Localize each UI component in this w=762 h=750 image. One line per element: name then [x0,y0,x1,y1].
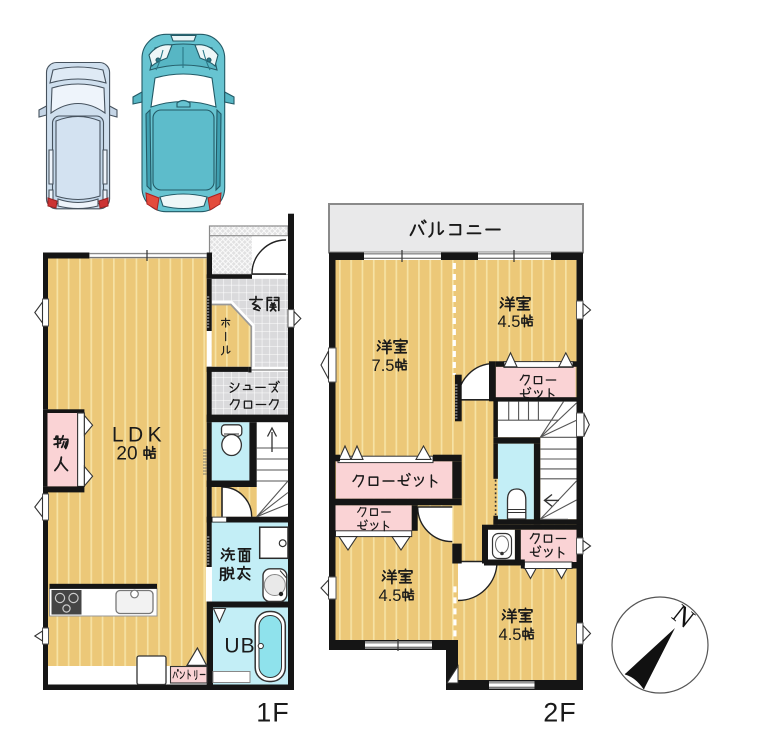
svg-text:4.5: 4.5 [498,313,521,331]
svg-text:1F: 1F [256,697,290,727]
svg-text:2F: 2F [543,697,577,727]
svg-text:20: 20 [116,444,137,465]
svg-text:UB: UB [224,634,255,657]
svg-text:7.5: 7.5 [372,357,395,375]
svg-text:4.5: 4.5 [379,587,402,605]
svg-text:4.5: 4.5 [499,626,522,644]
